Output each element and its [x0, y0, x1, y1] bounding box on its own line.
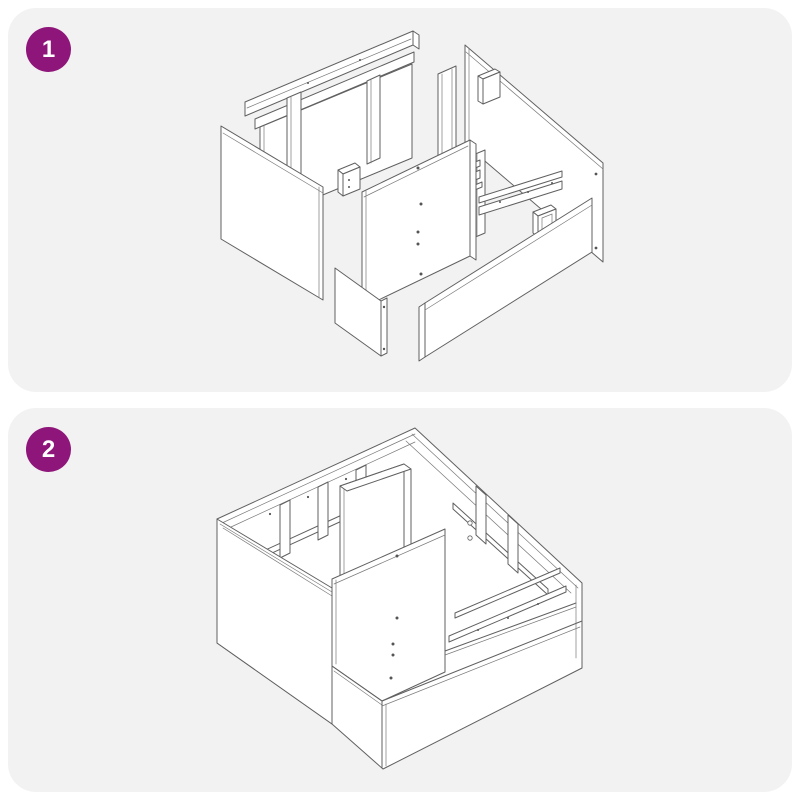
step-2-panel: 2	[8, 408, 792, 792]
step-1-exploded-diagram	[8, 8, 792, 392]
step-1-panel: 1	[8, 8, 792, 392]
step-2-assembled-diagram	[8, 408, 792, 792]
